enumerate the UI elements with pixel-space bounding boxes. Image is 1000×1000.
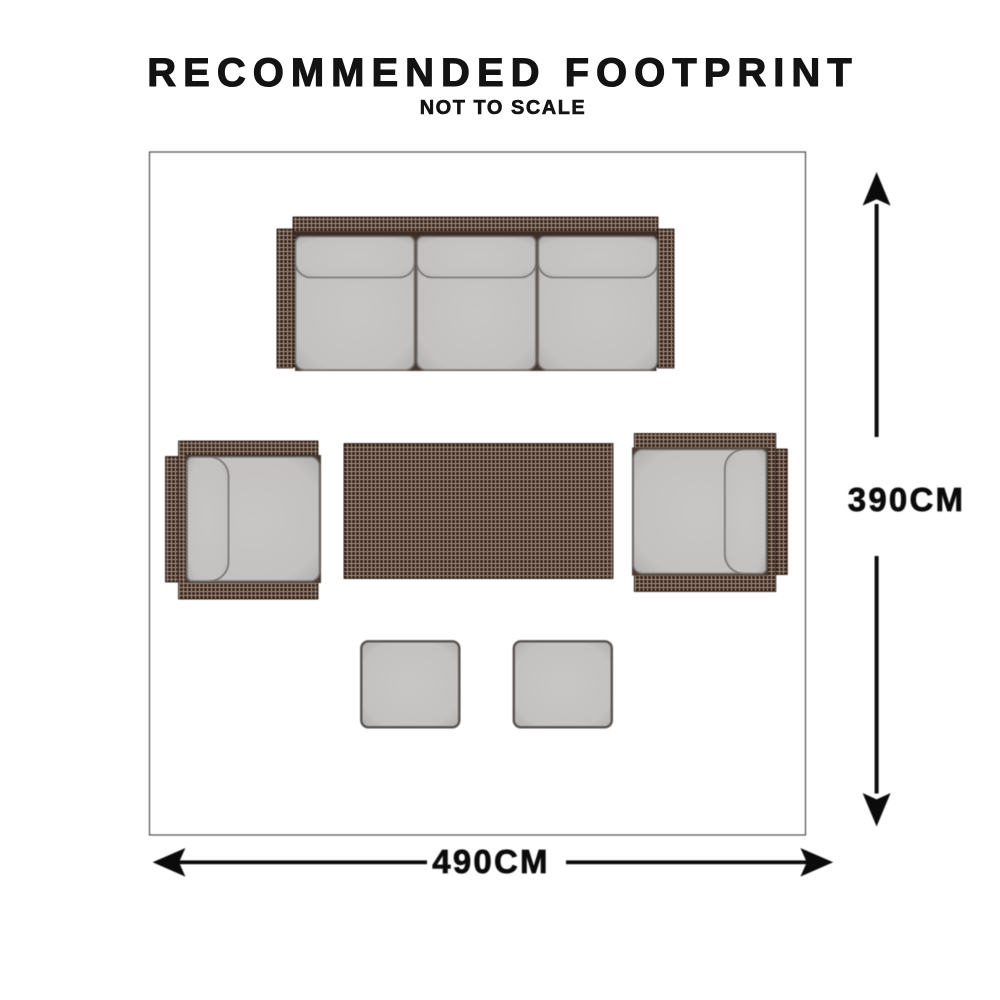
svg-text:390CM: 390CM [848, 481, 965, 518]
svg-text:490CM: 490CM [432, 843, 549, 880]
